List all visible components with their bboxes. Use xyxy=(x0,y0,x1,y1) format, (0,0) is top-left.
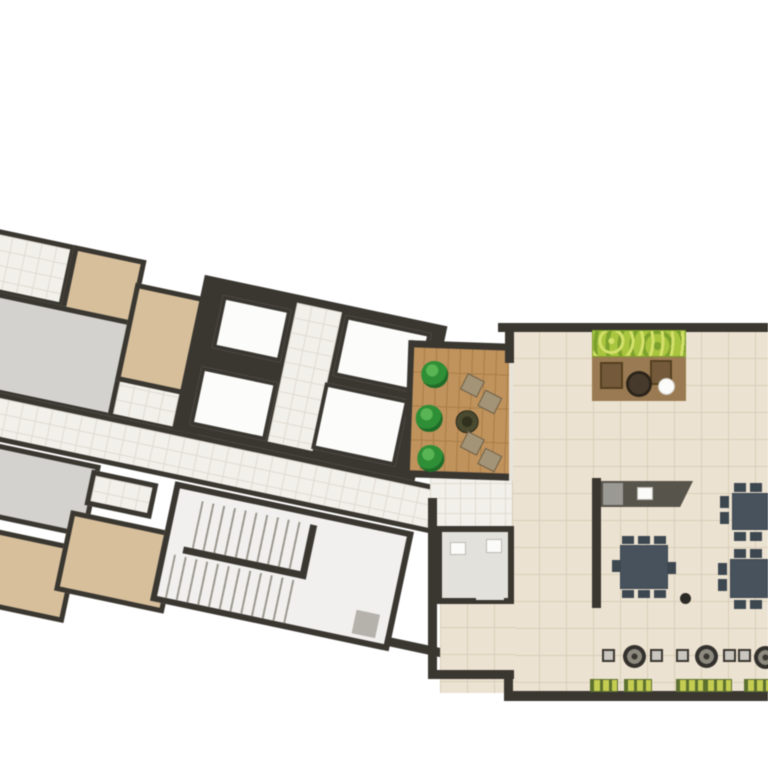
communal-table xyxy=(732,493,768,530)
chair xyxy=(718,579,727,591)
stool xyxy=(676,649,689,662)
stool xyxy=(602,649,615,662)
chair xyxy=(750,483,762,492)
floor-plan xyxy=(0,0,768,768)
hall-wall-bottom xyxy=(504,691,768,701)
stool xyxy=(723,649,736,662)
chair xyxy=(612,560,620,572)
kitchen-sink xyxy=(637,487,653,500)
shrub-2 xyxy=(415,404,443,432)
bistro-table-1 xyxy=(623,645,646,668)
stool xyxy=(650,649,663,662)
chair xyxy=(654,590,666,598)
chair xyxy=(750,532,762,541)
kitchen-wall xyxy=(592,478,601,608)
chair xyxy=(638,590,650,598)
wc-toilet xyxy=(486,539,502,553)
coffee-table xyxy=(626,371,652,397)
chair xyxy=(654,536,666,544)
chair xyxy=(668,562,676,574)
bathroom-2 xyxy=(84,470,158,519)
sun-lounger xyxy=(590,679,618,692)
hedge-planter xyxy=(592,330,686,357)
door-mat xyxy=(352,610,380,638)
wc-room xyxy=(436,526,514,604)
stool xyxy=(738,649,751,662)
elevator-shaft-3 xyxy=(189,366,278,441)
bistro-table-2 xyxy=(695,645,718,668)
sun-lounger xyxy=(704,679,732,692)
chair xyxy=(750,549,762,558)
communal-table-1 xyxy=(720,483,768,541)
chair xyxy=(734,549,746,558)
wc-door-gap xyxy=(476,592,504,600)
elevator-shaft-4 xyxy=(311,382,409,466)
plant-pot xyxy=(680,593,691,604)
hall-wall-step-h xyxy=(428,670,514,679)
wc-sink xyxy=(450,542,466,555)
sun-lounger xyxy=(624,679,652,692)
sun-lounger xyxy=(744,679,768,692)
chair xyxy=(720,512,729,524)
chair xyxy=(638,536,650,544)
elevator-shaft-1 xyxy=(212,295,292,362)
glass-door xyxy=(509,363,513,481)
chair xyxy=(734,483,746,492)
chair xyxy=(622,536,634,544)
lounge-rug xyxy=(592,357,686,401)
kitchen-table-group xyxy=(612,536,676,598)
armchair-left xyxy=(600,362,623,389)
communal-table xyxy=(730,559,768,598)
chair xyxy=(750,600,762,609)
kitchen-table xyxy=(620,545,668,589)
side-table xyxy=(658,378,675,395)
chair xyxy=(720,496,729,508)
communal-table-2 xyxy=(718,549,768,609)
hall-wall-left-upper xyxy=(505,327,514,363)
chair xyxy=(734,600,746,609)
kitchen-appliance xyxy=(603,483,623,505)
chair xyxy=(718,563,727,575)
kitchen-counter xyxy=(601,481,693,507)
chair xyxy=(734,532,746,541)
amenity-hall xyxy=(440,323,768,703)
chair xyxy=(622,590,634,598)
sun-lounger xyxy=(676,679,704,692)
